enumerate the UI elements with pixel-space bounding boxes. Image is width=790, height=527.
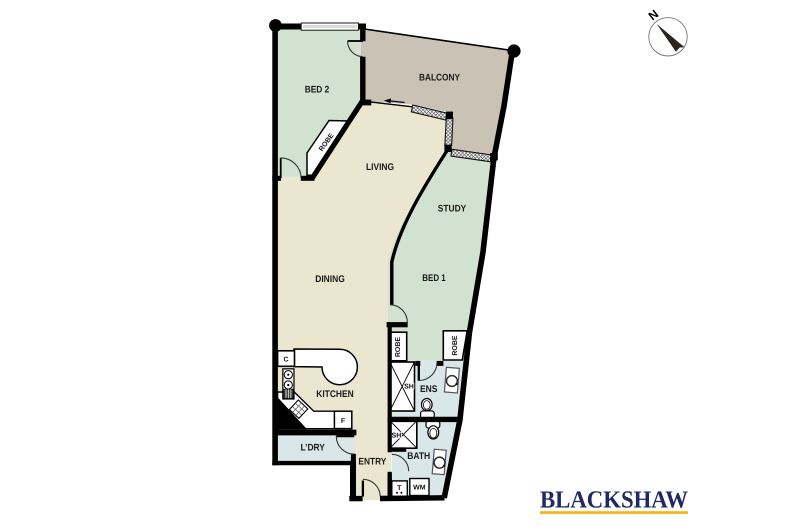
svg-text:BED 1: BED 1: [422, 273, 446, 284]
svg-text:DINING: DINING: [315, 274, 345, 285]
svg-text:WM: WM: [413, 485, 426, 492]
svg-text:ENTRY: ENTRY: [358, 456, 387, 467]
svg-text:T: T: [397, 485, 402, 492]
svg-text:N: N: [646, 7, 661, 23]
svg-text:SH: SH: [404, 384, 414, 391]
svg-text:LIVING: LIVING: [366, 162, 394, 173]
svg-text:C: C: [283, 357, 288, 364]
svg-text:BED 2: BED 2: [305, 84, 330, 95]
svg-text:L’DRY: L’DRY: [300, 443, 325, 454]
svg-text:F: F: [341, 418, 346, 425]
svg-text:STUDY: STUDY: [438, 204, 467, 215]
svg-text:ENS: ENS: [420, 384, 438, 395]
svg-text:BATH: BATH: [407, 451, 430, 462]
svg-text:BALCONY: BALCONY: [419, 73, 461, 84]
svg-text:BLACKSHAW: BLACKSHAW: [540, 487, 688, 514]
svg-text:SH: SH: [392, 433, 402, 440]
svg-text:ROBE: ROBE: [395, 337, 402, 358]
svg-text:KITCHEN: KITCHEN: [316, 389, 354, 400]
svg-text:ROBE: ROBE: [452, 335, 459, 356]
